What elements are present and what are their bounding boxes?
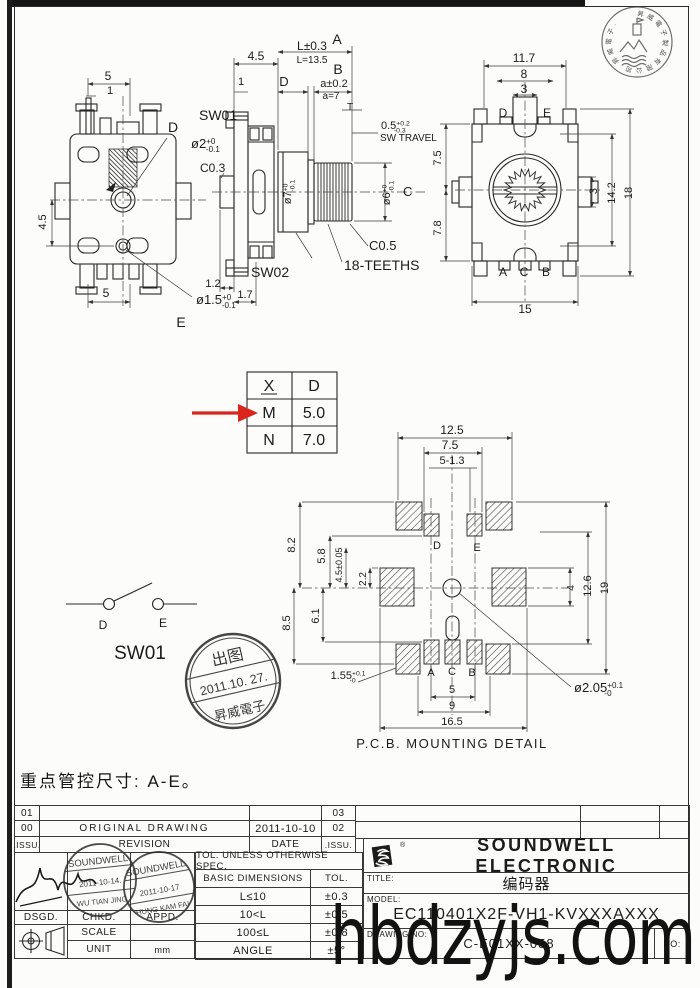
rev-issue2-1: 02 [321, 820, 356, 837]
rev-issue-0: 01 [14, 805, 40, 821]
tol-col2-hdr: TOL. [310, 869, 363, 888]
site-watermark: hbdzyjs.com [330, 897, 695, 977]
rev-desc-0 [39, 805, 250, 821]
signature-cell [14, 852, 68, 911]
stamp-cell-appd [130, 852, 195, 911]
dsgd-label: DSGD. [14, 910, 68, 925]
company-header: ® SOUNDWELL ELECTRONIC [363, 838, 690, 873]
company-name: SOUNDWELL ELECTRONIC [410, 835, 683, 877]
tol-range-1: L≤10 [195, 887, 311, 906]
rev-desc-1: ORIGINAL DRAWING [39, 820, 250, 837]
soundwell-logo [370, 842, 396, 870]
scale-value [130, 924, 195, 941]
unit-value: mm [130, 940, 195, 959]
registered-mark: ® [400, 842, 406, 849]
tol-col1-hdr: BASIC DIMENSIONS [195, 869, 311, 888]
scale-label: SCALE [67, 924, 131, 941]
tol-range-3: 100≤L [195, 923, 311, 942]
rev-date-1: 2011-10-10 [249, 820, 322, 837]
unit-label: UNIT [67, 940, 131, 959]
rev-date-0 [249, 805, 322, 821]
rev-issue2-0: 03 [321, 805, 356, 821]
rev-issue-hdr: .ISSU. [14, 836, 40, 853]
tol-header: TOL. UNLESS OTHERWISE SPEC. [195, 852, 363, 870]
tol-range-2: 10<L [195, 905, 311, 924]
title-label: TITLE: [367, 874, 394, 883]
projection-symbol-cell [14, 924, 68, 959]
stamp-cell-chkd [67, 852, 131, 911]
scan-artifact-left-strip [7, 0, 12, 988]
tol-range-4: ANGLE [195, 941, 311, 960]
appd-label: APPD. [130, 910, 195, 925]
rev-right-desc-0 [355, 805, 581, 822]
rev-issue-1: 00 [14, 820, 40, 837]
chkd-label: CHKD. [67, 910, 131, 925]
rev-right-x-0 [659, 805, 690, 822]
engineering-drawing-sheet: 01 03 00 ORIGINAL DRAWING 2011-10-10 02 … [0, 0, 700, 988]
control-dimension-note: 重点管控尺寸: A-E。 [20, 767, 201, 792]
rev-right-date-0 [580, 805, 660, 822]
